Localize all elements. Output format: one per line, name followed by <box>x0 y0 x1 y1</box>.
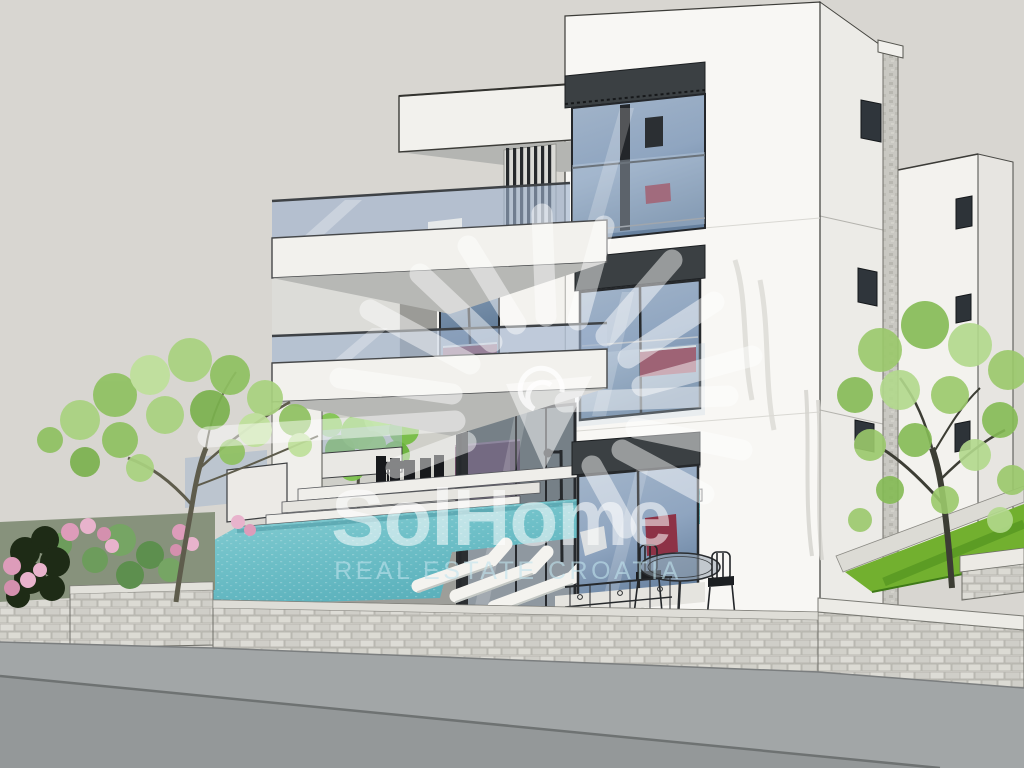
top-floor-glazing <box>565 62 705 242</box>
stone-pillar <box>883 47 898 605</box>
neighbor-window <box>956 294 971 323</box>
side-window <box>861 100 881 142</box>
neighbor-window <box>956 196 972 229</box>
wall-art <box>645 116 663 148</box>
side-window <box>858 268 877 306</box>
villa-architectural-rendering: SolHome REAL ESTATE CROATIA <box>0 0 1024 768</box>
watermark-title: SolHome <box>331 473 671 562</box>
watermark-subtitle: REAL ESTATE CROATIA <box>334 557 682 585</box>
